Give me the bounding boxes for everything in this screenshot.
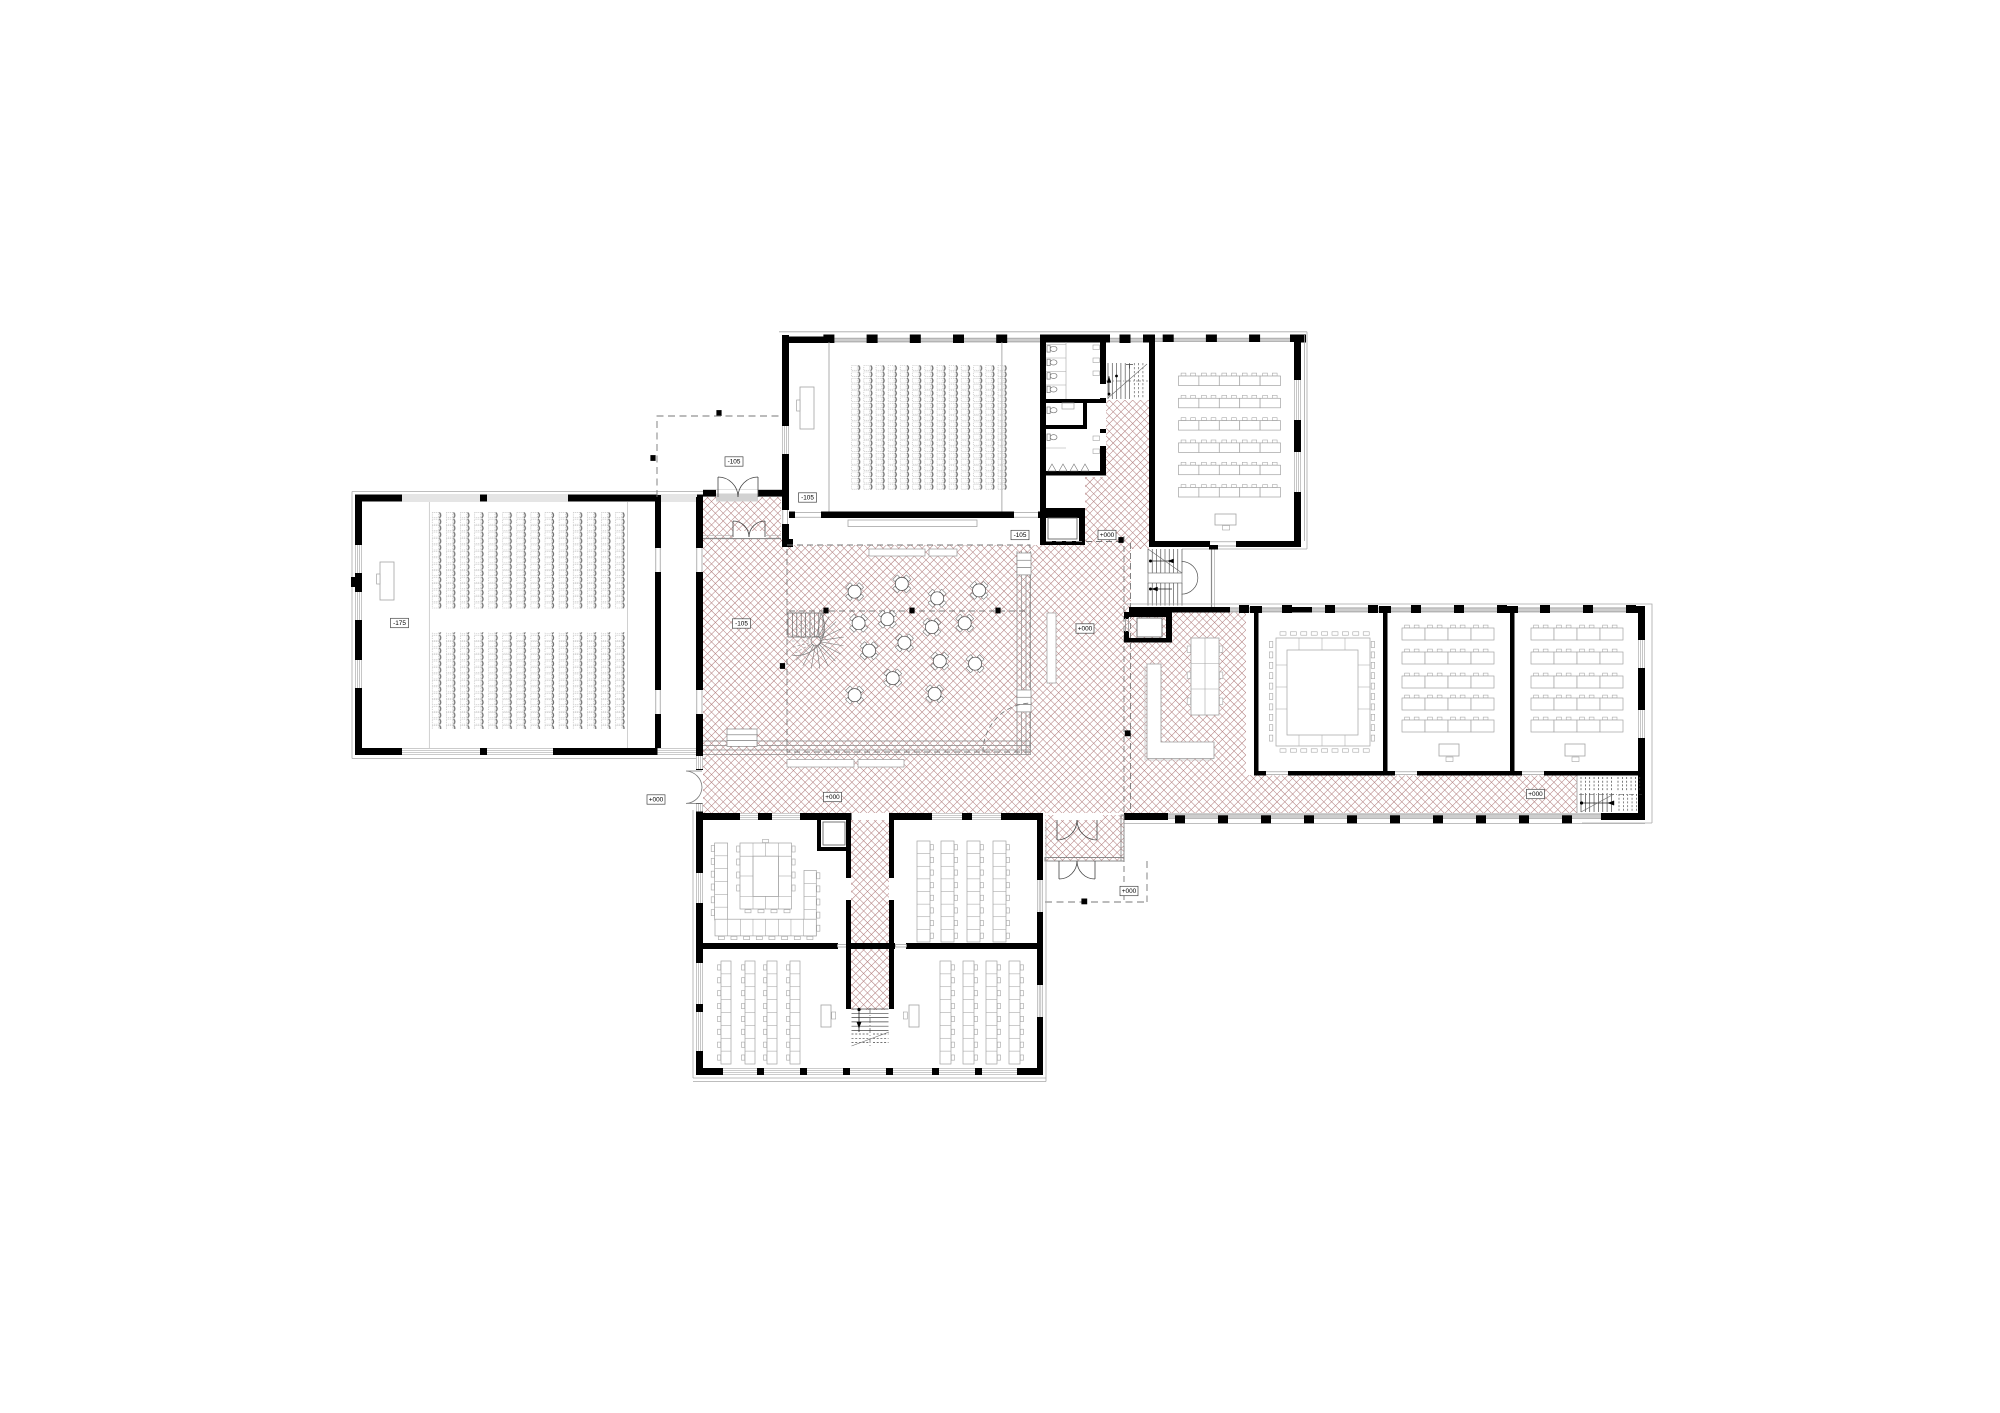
svg-text:-105: -105 [728,459,741,466]
svg-text:-105: -105 [1014,532,1027,539]
svg-text:-105: -105 [801,495,814,502]
svg-text:-175: -175 [393,620,406,627]
svg-text:+000: +000 [825,794,840,801]
svg-text:+000: +000 [1122,888,1137,895]
svg-text:+000: +000 [649,797,664,804]
svg-text:+000: +000 [1100,532,1115,539]
svg-text:+000: +000 [1078,626,1093,633]
svg-text:-105: -105 [735,621,748,628]
svg-text:+000: +000 [1528,791,1543,798]
